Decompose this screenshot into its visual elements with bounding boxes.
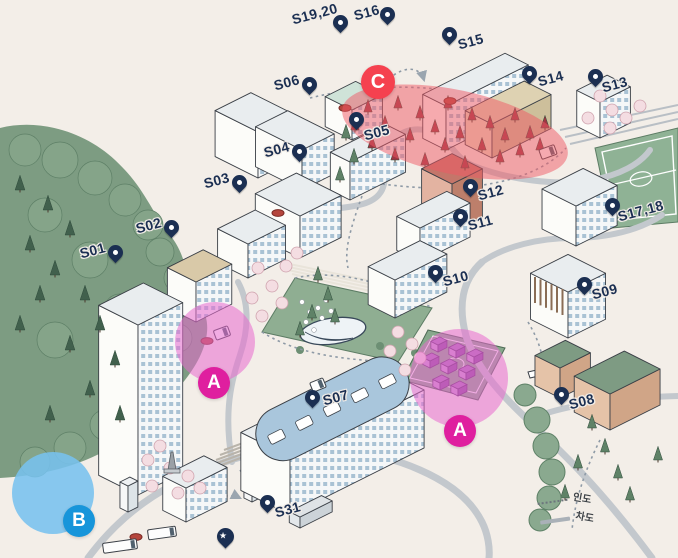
legend-label-roadway: 차도 bbox=[575, 507, 596, 525]
legend-label-walkway: 인도 bbox=[572, 488, 593, 506]
pin-hole bbox=[112, 249, 119, 256]
zone-badge-zone-a-east[interactable]: A bbox=[444, 415, 476, 447]
map-illustration bbox=[0, 0, 678, 558]
pin-hole bbox=[384, 11, 391, 18]
pin-hole bbox=[457, 213, 464, 220]
pin-hole bbox=[296, 148, 303, 155]
pin-hole bbox=[306, 81, 313, 88]
legend-line-dotted bbox=[537, 498, 567, 504]
legend-line-solid bbox=[540, 516, 570, 524]
map-legend: 인도차도 bbox=[536, 484, 596, 533]
pin-hole bbox=[467, 183, 474, 190]
pin-hole bbox=[526, 70, 533, 77]
star-icon: ★ bbox=[219, 532, 227, 541]
pin-hole bbox=[168, 224, 175, 231]
zone-badge-zone-a-west[interactable]: A bbox=[198, 367, 230, 399]
pin-hole bbox=[432, 269, 439, 276]
legend-item-roadway: 차도 bbox=[539, 507, 595, 529]
pin-hole bbox=[558, 391, 565, 398]
pin-hole bbox=[592, 73, 599, 80]
pin-hole bbox=[309, 394, 316, 401]
pin-hole bbox=[236, 179, 243, 186]
pin-hole bbox=[446, 31, 453, 38]
zone-highlight-zone-a-east bbox=[410, 329, 508, 427]
pin-hole bbox=[264, 499, 271, 506]
zone-badge-zone-b[interactable]: B bbox=[63, 505, 95, 537]
campus-map: AABC S01S02S03S04S05S06S07S08S09S10S11S1… bbox=[0, 0, 678, 558]
pin-hole bbox=[337, 19, 344, 26]
pin-hole bbox=[353, 116, 360, 123]
pin-hole bbox=[609, 202, 616, 209]
zone-badge-zone-c[interactable]: C bbox=[361, 65, 395, 99]
pin-hole bbox=[581, 281, 588, 288]
